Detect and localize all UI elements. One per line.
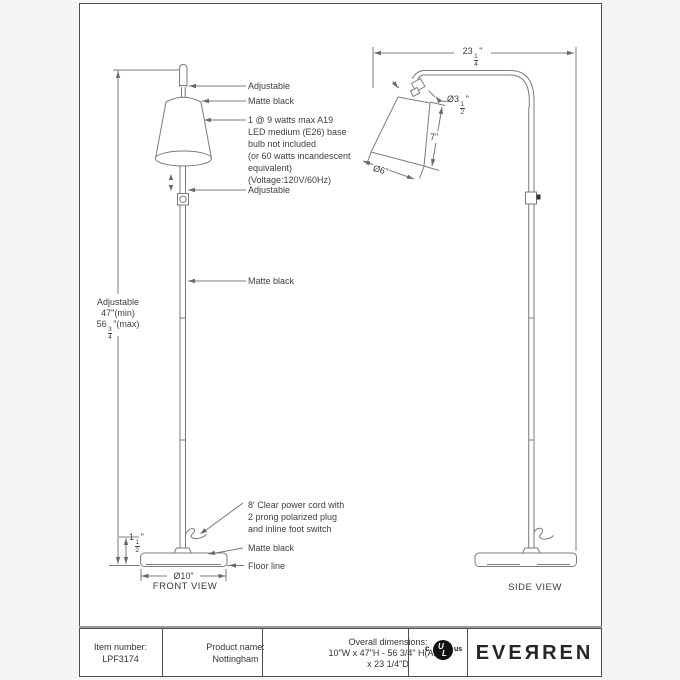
brand-logo: EVEЯREN (468, 643, 601, 663)
ul-l-letter: L (442, 650, 447, 658)
dim-depth: 2314" (450, 45, 495, 61)
fraction-numerator: 1 (135, 539, 140, 547)
fraction-denominator: 4 (474, 61, 478, 68)
brand-cell: EVEЯREN (468, 629, 601, 677)
dim-value: 23 (463, 46, 473, 56)
ul-c-label: c (425, 645, 429, 653)
fraction-numerator: 3 (108, 326, 113, 334)
dim-suffix: " (479, 46, 482, 56)
callout-adjustable-top: Adjustable (248, 80, 290, 92)
dim-suffix: "(max) (113, 319, 139, 329)
bulb-spec-line: equivalent) (248, 162, 351, 174)
dim-shade-top-diameter: Ø312" (447, 93, 469, 116)
cord-spec-line: 2 prong polarized plug (248, 511, 344, 523)
fraction-numerator: 1 (474, 53, 479, 61)
dim-suffix: " (141, 532, 144, 542)
callout-power-cord: 8' Clear power cord with 2 prong polariz… (248, 499, 344, 535)
cord-spec-line: 8' Clear power cord with (248, 499, 344, 511)
fraction-denominator: 4 (108, 334, 112, 341)
item-number-cell: Item number: LPF3174 (79, 629, 162, 677)
product-name-label: Product name: (163, 641, 308, 653)
dim-shade-height: 7" (429, 131, 439, 143)
dim-value: 56 (97, 319, 107, 329)
title-block: Item number: LPF3174 Product name: Notti… (79, 628, 602, 677)
callout-adjustable-mid: Adjustable (248, 184, 290, 196)
fraction-denominator: 2 (461, 109, 465, 116)
bulb-spec-line: 1 @ 9 watts max A19 (248, 114, 351, 126)
cord-spec-line: and inline foot switch (248, 523, 344, 535)
dim-value: 1 (129, 532, 134, 542)
callout-floor-line: Floor line (248, 560, 285, 572)
side-view-label: SIDE VIEW (480, 582, 590, 594)
product-name-value: Nottingham (163, 653, 308, 665)
callout-shade-finish: Matte black (248, 95, 294, 107)
bulb-spec-line: LED medium (E26) base (248, 126, 351, 138)
dim-value: Ø3 (447, 94, 459, 104)
item-number-value: LPF3174 (79, 653, 162, 665)
bulb-spec-line: bulb not included (248, 138, 351, 150)
callout-pole-finish: Matte black (248, 275, 294, 287)
ul-circle-icon: U L (433, 640, 453, 660)
ul-us-label: us (454, 646, 462, 653)
callout-bulb-spec: 1 @ 9 watts max A19 LED medium (E26) bas… (248, 114, 351, 186)
dim-suffix: " (466, 94, 469, 104)
dim-height-max: 5634"(max) (78, 318, 158, 334)
drawing-sheet (79, 3, 602, 677)
ul-certification-mark: c U L us (408, 628, 467, 677)
technical-drawing-page: { "front": { "adjustable_top": "Adjustab… (0, 0, 680, 680)
callout-base-finish: Matte black (248, 542, 294, 554)
fraction-numerator: 1 (460, 101, 465, 109)
item-number-label: Item number: (79, 641, 162, 653)
dim-base-height: 112" (129, 531, 144, 554)
bulb-spec-line: (or 60 watts incandescent (248, 150, 351, 162)
front-view-label: FRONT VIEW (130, 581, 240, 593)
product-name-cell: Product name: Nottingham (163, 629, 308, 677)
fraction-denominator: 2 (136, 547, 140, 554)
